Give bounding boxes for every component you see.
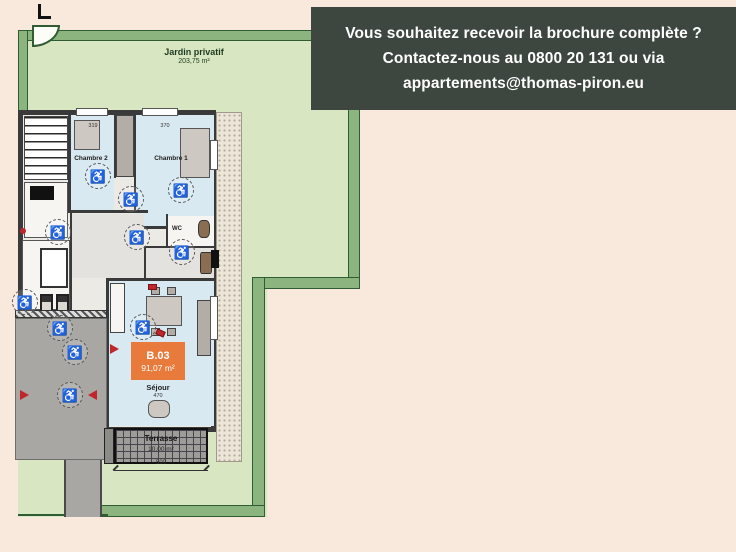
wheelchair-glyph: ♿ bbox=[17, 296, 33, 309]
door-right bbox=[211, 250, 219, 268]
unit-code: B.03 bbox=[131, 350, 185, 362]
plan-corner-mark-icon bbox=[38, 4, 51, 19]
terrace-edge-strip bbox=[104, 428, 114, 464]
garden-hedge-inner-right bbox=[252, 277, 265, 517]
wheelchair-icon: ♿ bbox=[12, 289, 38, 315]
garden-area: 203,75 m² bbox=[148, 58, 240, 67]
red-arrow-icon bbox=[88, 390, 97, 400]
wheelchair-glyph: ♿ bbox=[50, 226, 66, 239]
elevator-shaft bbox=[30, 186, 54, 200]
garden-hedge-left bbox=[18, 30, 28, 115]
wall bbox=[68, 112, 71, 212]
wheelchair-icon: ♿ bbox=[57, 382, 83, 408]
wheelchair-icon: ♿ bbox=[118, 186, 144, 212]
sejour-label: Séjour bbox=[131, 383, 185, 392]
wheelchair-glyph: ♿ bbox=[123, 193, 139, 206]
bed-chambre1 bbox=[180, 128, 210, 178]
wheelchair-icon: ♿ bbox=[47, 315, 73, 341]
wardrobe bbox=[116, 115, 134, 177]
wheelchair-glyph: ♿ bbox=[173, 184, 189, 197]
chair-icon bbox=[167, 328, 176, 336]
staircase bbox=[24, 116, 68, 180]
wc-label: WC bbox=[168, 226, 186, 232]
garden-name: Jardin privatif bbox=[148, 47, 240, 58]
banner-line-email[interactable]: appartements@thomas-piron.eu bbox=[311, 71, 736, 96]
floorplan-page: Jardin privatif 203,75 m² B.03 91 bbox=[0, 0, 736, 552]
wall bbox=[114, 112, 116, 178]
sejour-dim: 470 bbox=[131, 393, 185, 399]
wheelchair-glyph: ♿ bbox=[62, 389, 78, 402]
wheelchair-icon: ♿ bbox=[45, 219, 71, 245]
chair-icon bbox=[167, 287, 176, 295]
wheelchair-glyph: ♿ bbox=[135, 321, 151, 334]
wheelchair-icon: ♿ bbox=[85, 163, 111, 189]
garden-hedge-top bbox=[18, 30, 360, 41]
terrace-dim: 500 bbox=[114, 460, 208, 466]
window-right-2 bbox=[210, 296, 218, 340]
banner-line-phone: Contactez-nous au 0800 20 131 ou via bbox=[311, 46, 736, 71]
red-marker-icon bbox=[148, 284, 157, 290]
kitchen-counter bbox=[110, 283, 125, 333]
brochure-banner[interactable]: Vous souhaitez recevoir la brochure comp… bbox=[311, 7, 736, 110]
wheelchair-icon: ♿ bbox=[168, 177, 194, 203]
wheelchair-glyph: ♿ bbox=[129, 231, 145, 244]
wheelchair-icon: ♿ bbox=[62, 339, 88, 365]
chambre1-dim: 370 bbox=[150, 123, 180, 129]
wheelchair-icon: ♿ bbox=[130, 314, 156, 340]
red-marker-icon bbox=[20, 228, 26, 234]
wheelchair-glyph: ♿ bbox=[90, 170, 106, 183]
window-top-2 bbox=[142, 108, 178, 116]
red-arrow-icon bbox=[20, 390, 29, 400]
chambre2-dim: 319 bbox=[78, 123, 108, 129]
wheelchair-glyph: ♿ bbox=[67, 346, 83, 359]
unit-badge: B.03 91,07 m² bbox=[131, 342, 185, 380]
sofa bbox=[197, 300, 211, 356]
red-arrow-icon bbox=[110, 344, 119, 354]
terrace-label: Terrasse bbox=[114, 434, 208, 443]
garden-path bbox=[64, 460, 102, 517]
gravel-strip bbox=[216, 112, 242, 462]
chambre1-label: Chambre 1 bbox=[148, 155, 194, 162]
storage-cabinet bbox=[40, 248, 68, 288]
unit-area: 91,07 m² bbox=[131, 363, 185, 373]
window-top-1 bbox=[76, 108, 108, 116]
terrace-area: 10,00 m² bbox=[114, 446, 208, 453]
garden-hedge-bottom bbox=[100, 505, 265, 517]
toilet-icon bbox=[198, 220, 210, 238]
garden-hedge-step bbox=[252, 277, 360, 289]
armchair bbox=[148, 400, 170, 418]
wheelchair-glyph: ♿ bbox=[174, 246, 190, 259]
chambre2-label: Chambre 2 bbox=[68, 155, 114, 162]
banner-line-question: Vous souhaitez recevoir la brochure comp… bbox=[311, 21, 736, 46]
terrace-dimension-line bbox=[114, 470, 208, 472]
wheelchair-icon: ♿ bbox=[169, 239, 195, 265]
wheelchair-icon: ♿ bbox=[124, 224, 150, 250]
garden-label: Jardin privatif 203,75 m² bbox=[148, 47, 240, 67]
wheelchair-glyph: ♿ bbox=[52, 322, 68, 335]
window-right-1 bbox=[210, 140, 218, 170]
